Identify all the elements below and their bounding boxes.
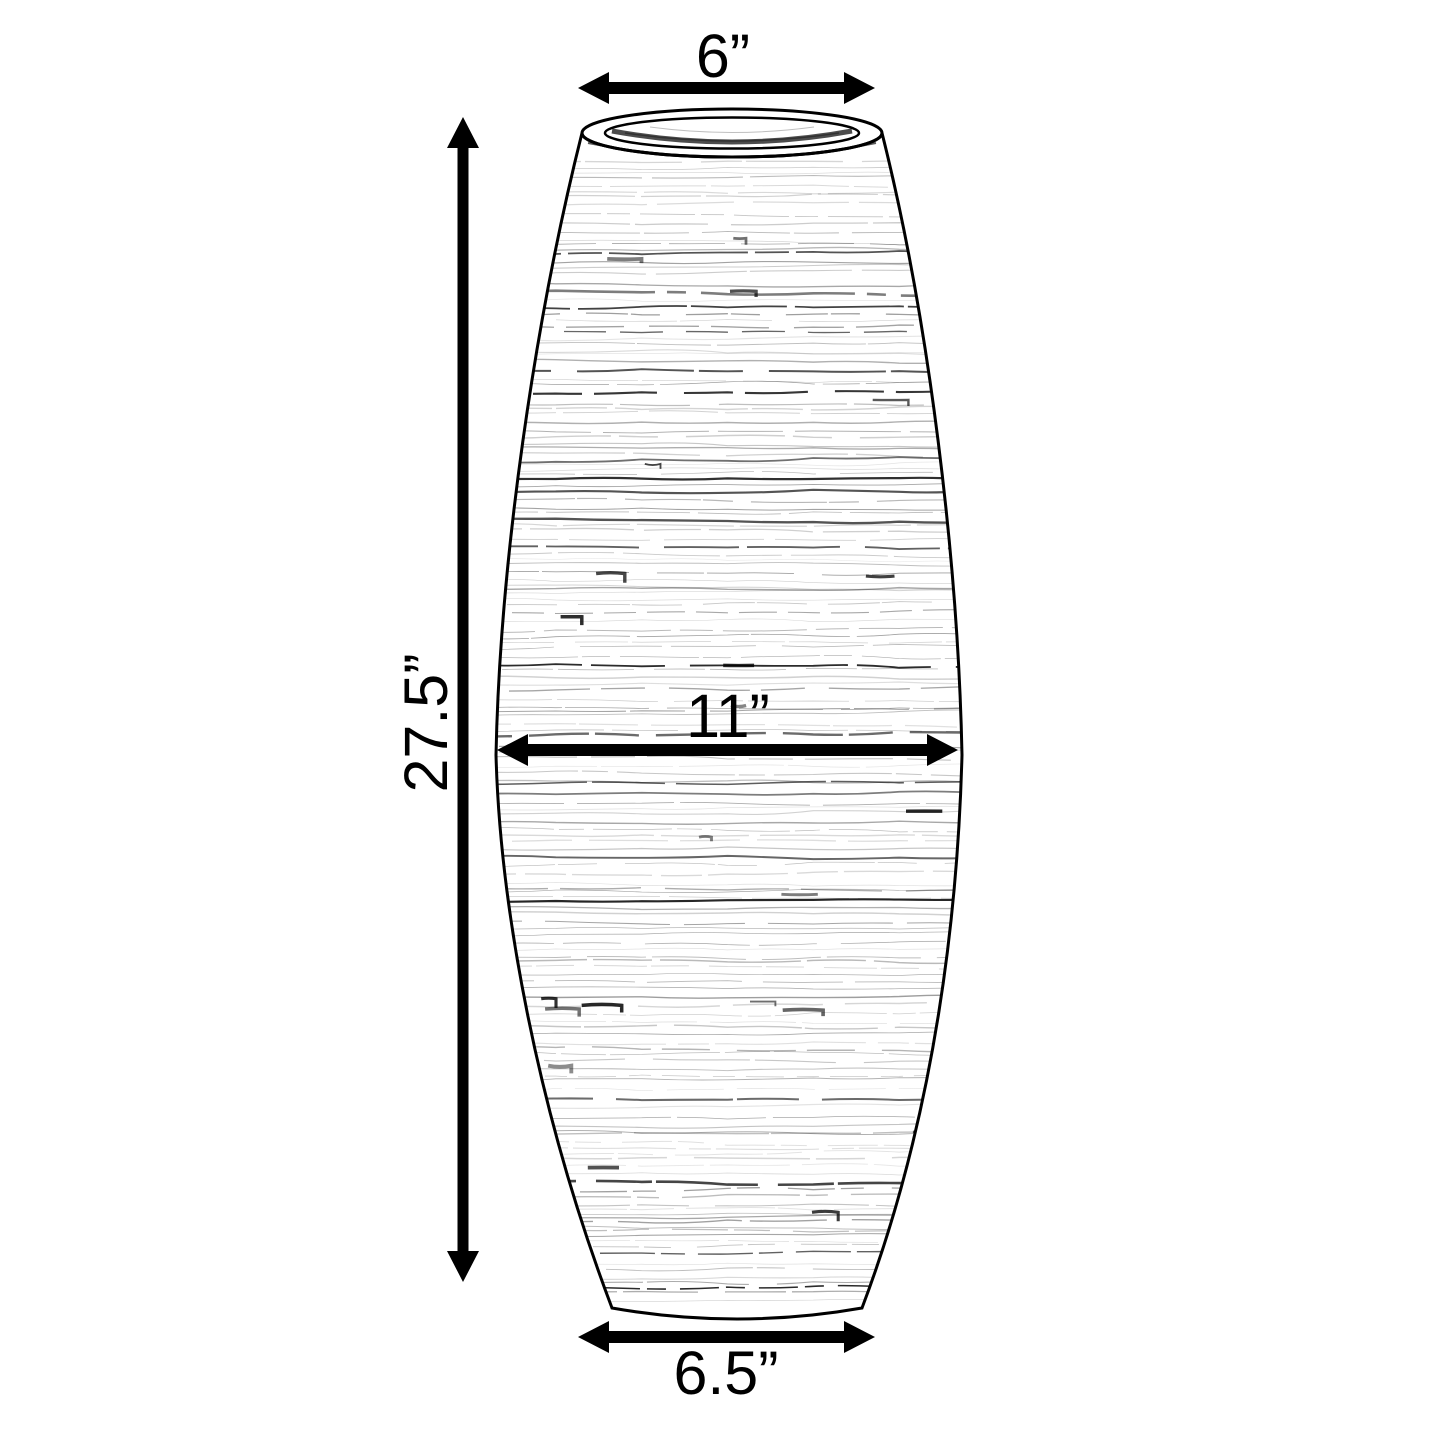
height-arrowhead-top [447, 117, 479, 148]
height-label: 27.5” [392, 653, 460, 792]
top-diameter-arrowhead-right [844, 72, 875, 104]
dimension-top-diameter: 6” [578, 22, 875, 104]
dimension-diagram-page: 6” 27.5” 11” 6.5” [0, 0, 1445, 1445]
bottom-diameter-label: 6.5” [673, 1339, 778, 1407]
top-diameter-label: 6” [696, 22, 750, 90]
bottom-diameter-arrowhead-left [578, 1321, 609, 1353]
dimension-height: 27.5” [392, 117, 479, 1282]
top-diameter-arrowhead-left [578, 72, 609, 104]
vase-dimension-diagram: 6” 27.5” 11” 6.5” [0, 0, 1445, 1445]
middle-diameter-label: 11” [686, 682, 770, 750]
dimension-bottom-diameter: 6.5” [578, 1321, 875, 1407]
height-arrowhead-bottom [447, 1251, 479, 1282]
texture-knot-mark [866, 576, 895, 577]
bottom-diameter-arrowhead-right [844, 1321, 875, 1353]
